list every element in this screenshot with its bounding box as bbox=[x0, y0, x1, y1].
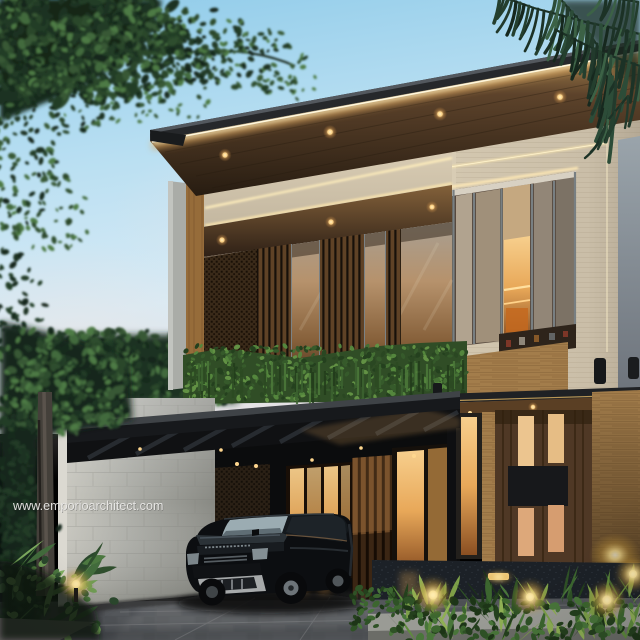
svg-text:www.emporioarchitect.com: www.emporioarchitect.com bbox=[12, 499, 163, 513]
